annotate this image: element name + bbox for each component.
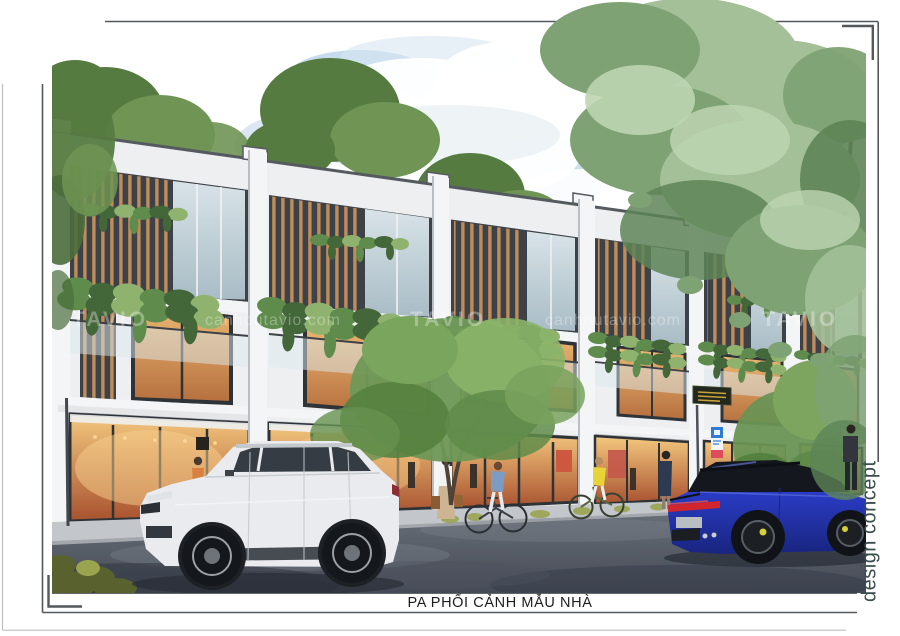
- watermark-text: canhoutavio.com: [205, 312, 341, 329]
- architectural-render-sheet: TAVIO canhoutavio.com TAVIO canhoutavio.…: [0, 0, 900, 636]
- caption-title: PA PHỐI CẢNH MẪU NHÀ: [145, 594, 855, 612]
- shopping-bag: [455, 495, 463, 507]
- render-graphic: TAVIO canhoutavio.com TAVIO canhoutavio.…: [0, 0, 900, 636]
- shop-plaque: [196, 437, 209, 450]
- watermark-text: canhoutavio.com: [545, 312, 681, 329]
- lamp-pole: [67, 398, 69, 526]
- side-label: design concept: [855, 464, 885, 598]
- suv-mirror: [225, 470, 234, 476]
- watermark-text: TAVIO: [762, 308, 838, 331]
- watermark-text: TAVIO: [72, 308, 148, 331]
- street-sign: [711, 427, 723, 458]
- license-plate: [676, 517, 702, 528]
- render-photo: TAVIO canhoutavio.com TAVIO canhoutavio.…: [0, 0, 900, 607]
- shop-sign-board: [693, 386, 731, 405]
- shopping-bag: [431, 496, 440, 509]
- watermark-text: TAVIO: [410, 308, 486, 331]
